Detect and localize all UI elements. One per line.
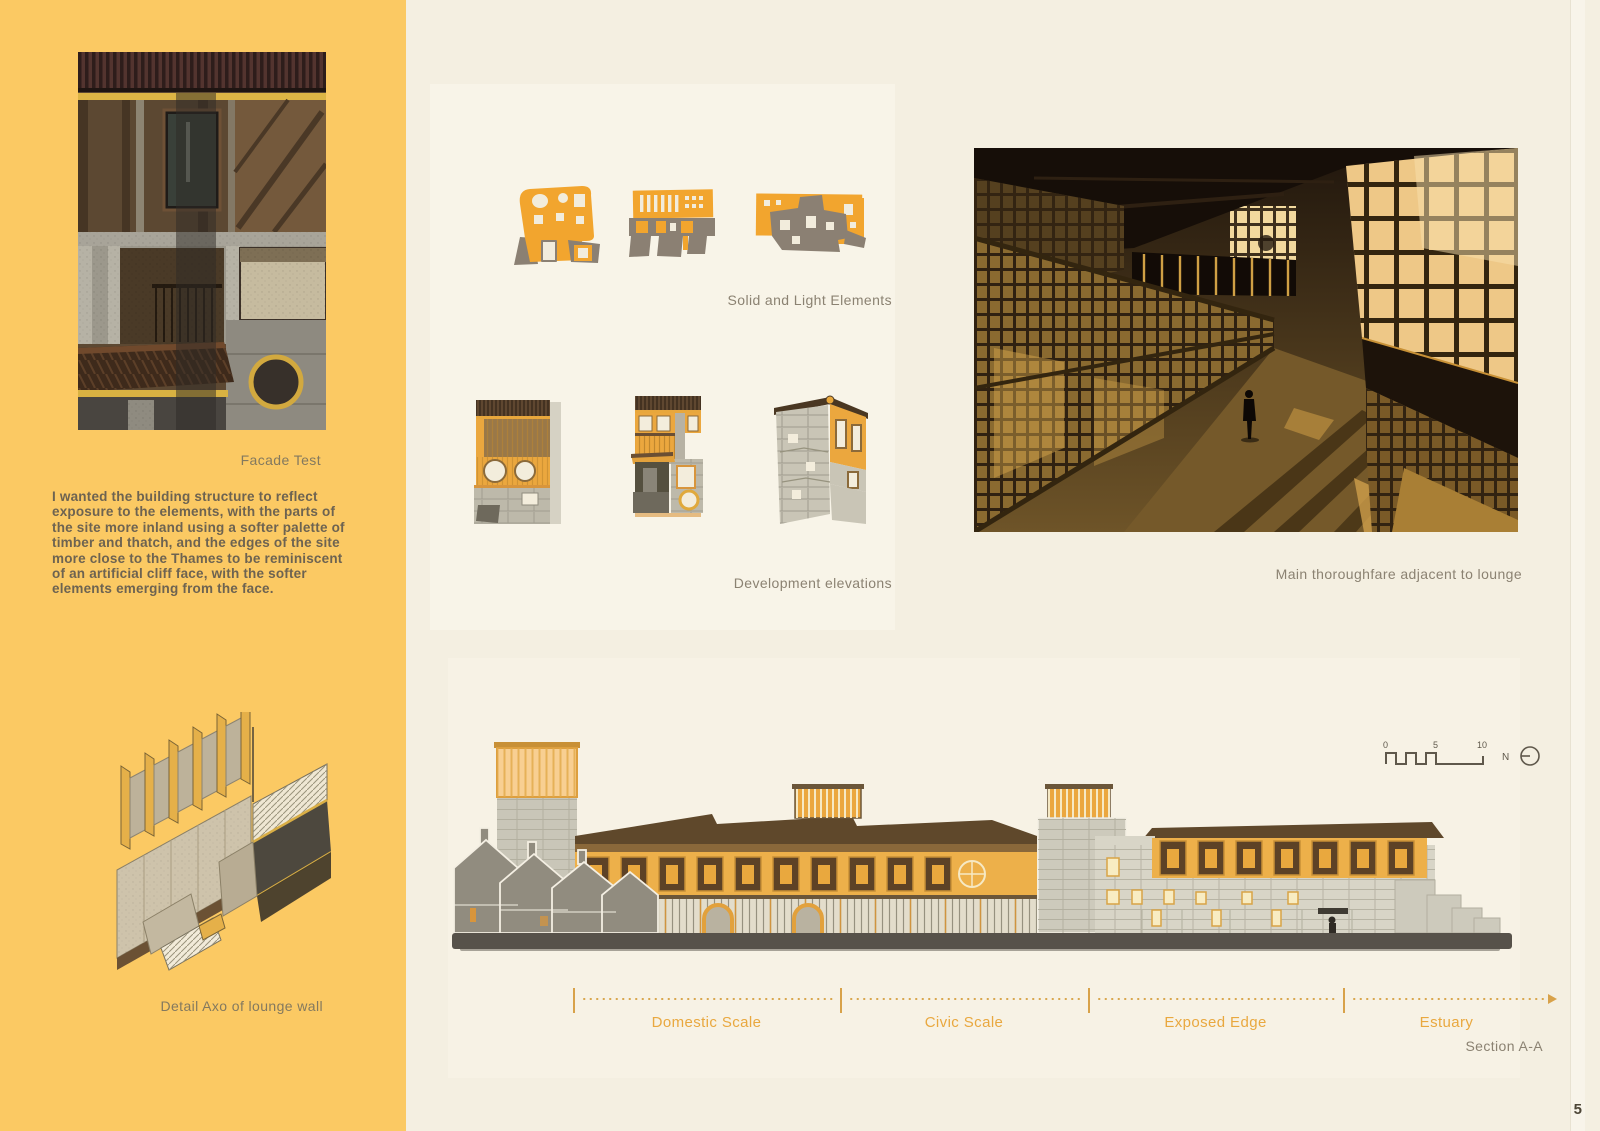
facade-test-figure [78, 52, 326, 430]
section-caption: Section A-A [1380, 1038, 1543, 1054]
detail-axo-figure [103, 712, 331, 984]
scale-ten: 10 [1477, 740, 1487, 750]
scale-bar-line [1386, 753, 1483, 764]
section-label-domestic: Domestic Scale [573, 1014, 840, 1031]
design-statement: I wanted the building structure to refle… [52, 489, 356, 597]
interior-render-figure [974, 148, 1518, 532]
scale-zero: 0 [1383, 740, 1388, 750]
axo-caption: Detail Axo of lounge wall [80, 998, 323, 1014]
scale-bar: 0 5 10 N [1378, 736, 1548, 770]
facade-caption: Facade Test [100, 452, 321, 468]
scale-five: 5 [1433, 740, 1438, 750]
solid-light-sketches-figure [512, 182, 872, 268]
north-label: N [1502, 752, 1509, 763]
dim-tick [573, 988, 575, 1013]
section-drawing-figure [452, 740, 1515, 955]
dim-dots [848, 997, 1082, 1001]
dim-arrow-icon [1548, 994, 1557, 1004]
development-elevations-figure [470, 392, 870, 535]
dim-dots [1096, 997, 1337, 1001]
page-number: 5 [1540, 1101, 1582, 1118]
dim-dots [1351, 997, 1546, 1001]
portfolio-page: Facade Test I wanted the building struct… [0, 0, 1600, 1131]
dim-tick [1343, 988, 1345, 1013]
elevations-caption: Development elevations [640, 575, 892, 591]
section-label-estuary: Estuary [1343, 1014, 1550, 1031]
sketch-panel [430, 84, 895, 630]
dim-tick [1088, 988, 1090, 1013]
page-edge [1570, 0, 1585, 1131]
north-arrow-icon [1521, 747, 1539, 765]
render-caption: Main thoroughfare adjacent to lounge [1160, 566, 1522, 582]
section-label-exposed: Exposed Edge [1088, 1014, 1343, 1031]
sketches-caption: Solid and Light Elements [640, 292, 892, 308]
section-label-civic: Civic Scale [840, 1014, 1088, 1031]
dim-dots [581, 997, 834, 1001]
dim-tick [840, 988, 842, 1013]
